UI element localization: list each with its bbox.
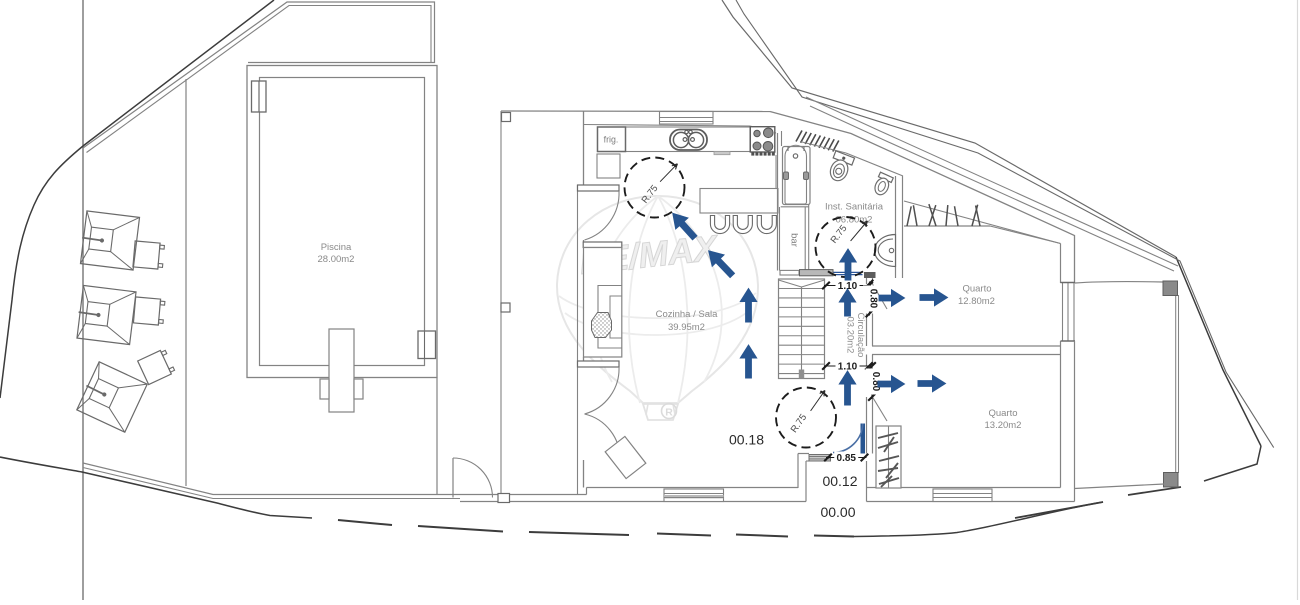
svg-text:R: R: [665, 407, 673, 419]
svg-text:bar: bar: [789, 233, 800, 247]
svg-text:00.00: 00.00: [820, 504, 855, 520]
svg-text:Cozinha / Sala: Cozinha / Sala: [656, 309, 719, 320]
svg-text:Inst. Sanitária: Inst. Sanitária: [825, 202, 884, 213]
svg-text:39.95m2: 39.95m2: [668, 322, 705, 333]
svg-text:Piscina: Piscina: [321, 242, 352, 253]
svg-text:28.00m2: 28.00m2: [318, 254, 355, 265]
svg-text:12.80m2: 12.80m2: [958, 296, 995, 307]
svg-text:Quarto: Quarto: [988, 408, 1017, 419]
svg-text:0.80: 0.80: [868, 289, 879, 309]
svg-text:03.20m2: 03.20m2: [845, 317, 856, 354]
svg-text:0.85: 0.85: [837, 453, 857, 464]
svg-text:00.12: 00.12: [822, 473, 857, 489]
svg-text:frig.: frig.: [604, 135, 619, 145]
svg-text:00.18: 00.18: [729, 432, 764, 448]
svg-text:13.20m2: 13.20m2: [985, 420, 1022, 431]
svg-text:Circulação: Circulação: [855, 313, 866, 358]
svg-text:Quarto: Quarto: [962, 284, 991, 295]
